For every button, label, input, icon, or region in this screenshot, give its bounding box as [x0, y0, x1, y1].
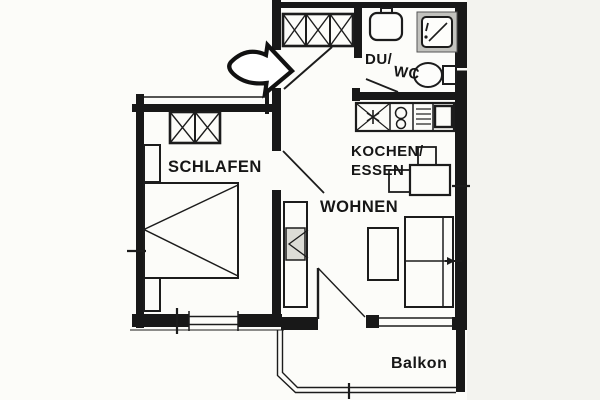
washbasin-icon — [370, 8, 402, 40]
shower-icon — [417, 12, 457, 52]
floor-plan: SCHLAFEN WOHNEN KOCHEN/ ESSEN DU/ WC Bal… — [0, 0, 600, 400]
room-label-bath-line2: WC — [393, 63, 421, 83]
room-label-kitchen-line2: ESSEN — [351, 162, 404, 179]
room-label-living: WOHNEN — [320, 198, 398, 216]
outside-shade-right — [467, 0, 600, 400]
room-label-bath-line1: DU/ — [365, 51, 393, 68]
floor-plan-canvas: SCHLAFEN WOHNEN KOCHEN/ ESSEN DU/ WC Bal… — [0, 0, 600, 400]
room-label-balcony: Balkon — [391, 355, 447, 372]
room-label-kitchen-line1: KOCHEN/ — [351, 143, 424, 160]
room-label-bedroom: SCHLAFEN — [168, 158, 262, 176]
